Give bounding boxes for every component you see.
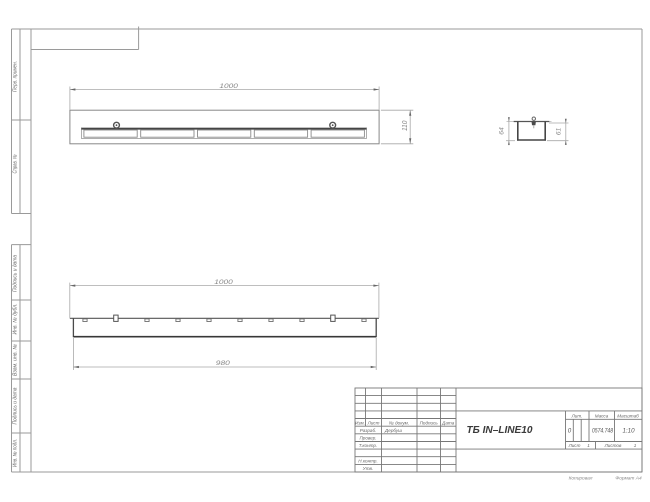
svg-text:1000: 1000 xyxy=(219,83,238,90)
svg-text:Формат А4: Формат А4 xyxy=(615,476,642,482)
svg-text:Масштаб: Масштаб xyxy=(617,413,639,418)
svg-text:№ докум.: № докум. xyxy=(389,420,409,425)
svg-text:Лит.: Лит. xyxy=(571,413,583,418)
svg-text:0: 0 xyxy=(568,427,572,434)
svg-text:Масса: Масса xyxy=(595,413,609,418)
svg-text:0574.748: 0574.748 xyxy=(592,427,613,434)
svg-text:Подпись и дата: Подпись и дата xyxy=(13,255,19,292)
svg-text:61: 61 xyxy=(556,128,563,136)
svg-text:1000: 1000 xyxy=(214,279,233,286)
svg-text:Листов: Листов xyxy=(604,443,622,448)
svg-text:110: 110 xyxy=(402,120,409,131)
svg-text:Утв.: Утв. xyxy=(363,466,373,471)
svg-text:Справ. №: Справ. № xyxy=(13,154,19,173)
svg-text:1:10: 1:10 xyxy=(622,427,635,434)
svg-text:Лист: Лист xyxy=(367,420,380,425)
svg-text:Копировал: Копировал xyxy=(569,476,593,482)
svg-text:Т.контр.: Т.контр. xyxy=(359,443,378,448)
svg-text:980: 980 xyxy=(216,360,230,367)
svg-text:Подпись: Подпись xyxy=(420,420,439,425)
svg-text:Провер.: Провер. xyxy=(359,436,376,441)
svg-text:Дербуш: Дербуш xyxy=(384,428,402,433)
svg-text:Дата: Дата xyxy=(441,420,455,425)
svg-text:Перв. примен.: Перв. примен. xyxy=(13,61,19,92)
svg-text:Изм.: Изм. xyxy=(355,420,365,425)
svg-text:Инв. № подл.: Инв. № подл. xyxy=(13,439,19,467)
svg-text:64: 64 xyxy=(499,127,506,135)
svg-text:ТБ IN–LINE10: ТБ IN–LINE10 xyxy=(467,424,533,436)
svg-text:Подпись и дата: Подпись и дата xyxy=(13,387,19,424)
svg-text:Н.контр.: Н.контр. xyxy=(358,459,377,464)
svg-text:Взам. инв. №: Взам. инв. № xyxy=(13,344,19,376)
svg-text:Разраб.: Разраб. xyxy=(360,428,377,433)
svg-text:Лист: Лист xyxy=(568,443,581,448)
svg-text:1: 1 xyxy=(587,443,590,448)
svg-text:1: 1 xyxy=(634,443,637,448)
svg-text:Инв. № дубл.: Инв. № дубл. xyxy=(13,304,19,335)
